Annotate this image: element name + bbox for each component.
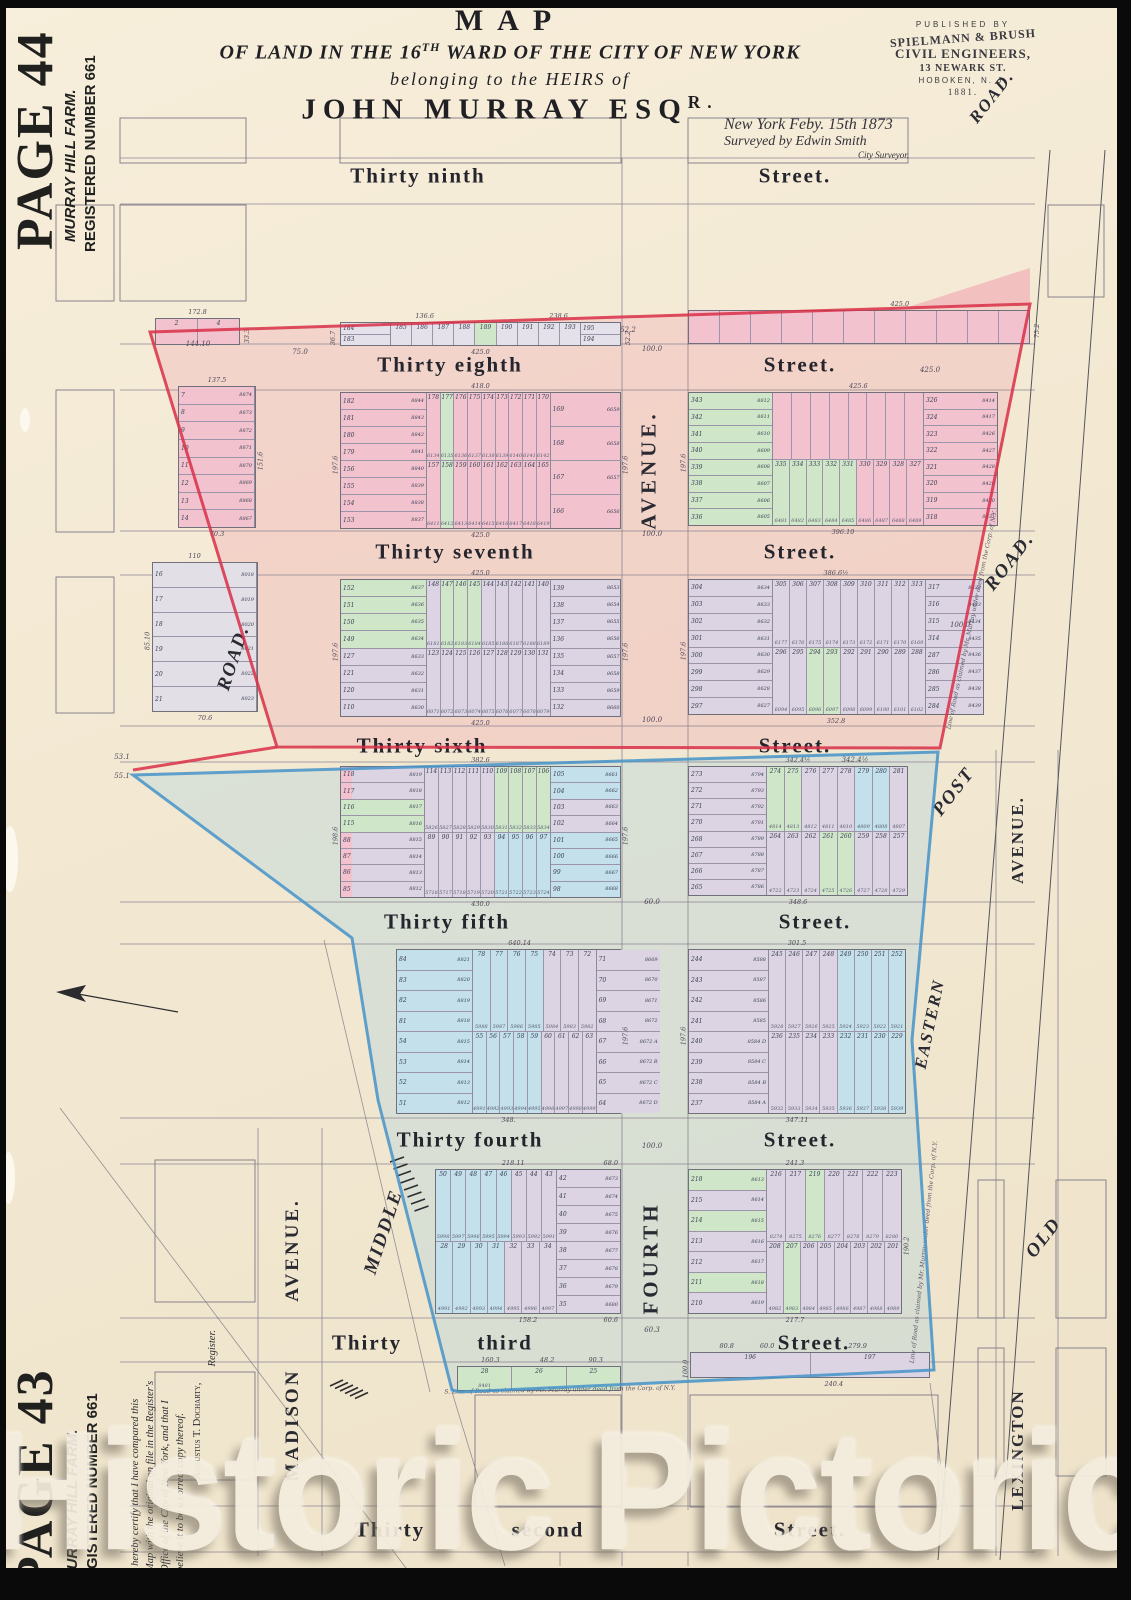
street-label-right: Street. [779,910,852,935]
lot-number: 298 [691,686,702,693]
deed-number: 5827 [439,825,452,831]
lot-number: 220 [828,1171,839,1178]
lot-number: 216 [770,1171,781,1178]
deed-number: 6094 [775,707,788,713]
scan-border-right [1117,0,1131,1600]
lot-number: 201 [887,1243,898,1250]
lot-number: 115 [343,820,354,827]
lot-cell: 191 [518,323,539,345]
lot-number: 57 [503,1033,511,1040]
lot-cell: 2054985 [818,1242,835,1313]
deed-number: 4814 [769,824,782,830]
lot-cell: 3296487 [874,460,891,526]
lot-cell: 658672 C [597,1073,660,1094]
deed-number: 8277 [828,1234,841,1240]
deed-number: 8428 [982,464,995,470]
lot-number: 2 [175,320,179,327]
lot-number: 172 [510,394,521,401]
lot-cell: 465994 [497,1170,512,1241]
lot-cell: 1338659 [551,683,622,700]
deed-number: 5995 [482,1234,495,1240]
lot-number: 38 [559,1247,567,1254]
lot-cell: 1048662 [551,783,620,799]
deed-number: 6172 [860,640,873,646]
lot-cell: 2525921 [889,950,905,1031]
lot-cell: 604996 [542,1032,556,1113]
measurement-label: 197.6 [679,454,687,473]
lot-cell: 294992 [453,1242,470,1313]
deed-number: 6183 [454,641,467,647]
lot-cell: 2428586 [689,991,768,1012]
lot-number: 211 [691,1279,702,1286]
lot-number: 81 [399,1018,407,1025]
lot-cell: 455993 [512,1170,527,1241]
deed-number: 8609 [757,448,770,454]
lot-cell: 187 [433,323,454,345]
lot-cell: 1616415 [482,461,496,528]
lot-number: 103 [553,804,564,811]
deed-number: 8617 [751,1259,764,1265]
measurement-label: 425.0 [471,569,490,577]
measurement-label: 386.6½ [824,569,849,577]
lot-number: 293 [826,649,837,656]
lot-cell [773,393,792,459]
lot-column: 1058661104866210386631028664101866510086… [550,767,620,897]
lot-cell: 2438587 [689,971,768,992]
lot-number: 257 [893,833,904,840]
lot-cell: 1378655 [551,614,622,631]
lot-number: 166 [553,508,564,515]
publisher-badge: PUBLISHED BY SPIELMANN & BRUSH CIVIL ENG… [868,20,1058,97]
deed-number: 6076 [496,709,509,715]
deed-number: 8633 [411,654,424,660]
title-belonging-line: belonging to the HEIRS of [170,69,850,90]
lot-number: 326 [926,397,937,404]
deed-number: 4813 [787,824,800,830]
lot-number: 281 [893,768,904,775]
publisher-address: 13 NEWARK ST. [868,63,1058,74]
lot-cell: 1646418 [523,461,537,528]
lot-cell: 2355933 [786,1032,803,1113]
deed-number: 4992 [455,1306,468,1312]
deed-number: 6134 [427,453,440,459]
lot-cell: 1038663 [551,800,620,816]
deed-number: 6659 [607,407,620,413]
deed-number: 5991 [543,1234,556,1240]
lot-number: 73 [566,951,574,958]
lot-number: 92 [470,834,478,841]
lot-number: 182 [343,398,354,405]
measurement-label: 240.4 [824,1380,843,1388]
lot-number: 194 [583,336,594,343]
lot-cell: 505998 [436,1170,451,1241]
deed-number: 8635 [411,619,424,625]
street-label: Thirty sixth [357,734,488,759]
lot-number: 97 [540,834,548,841]
lot-number: 33 [527,1243,535,1250]
lot-block: 3438612342861134186103408609339860833886… [688,392,998,526]
deed-number: 8610 [757,431,770,437]
lot-number: 271 [691,803,702,810]
deed-number: 8632 [411,671,424,677]
scan-border-left [0,0,6,1600]
lot-number: 93 [484,834,492,841]
deed-number: 8585 [753,1018,766,1024]
lot-number: 102 [553,820,564,827]
lot-cell: 2158614 [689,1191,766,1212]
lot-number: 178 [428,394,439,401]
lot-number: 179 [343,449,354,456]
deed-number: 5718 [453,890,466,896]
lot-cell: 435991 [542,1170,556,1241]
lot-number: 63 [585,1033,593,1040]
lot-cell: 2515922 [872,950,889,1031]
deed-number: 8815 [457,1039,470,1045]
lot-number: 56 [489,1033,497,1040]
lot-number: 67 [599,1038,607,1045]
lot-number: 263 [787,833,798,840]
deed-number: 5996 [467,1234,480,1240]
lot-number: 338 [691,480,702,487]
road-label: AVENUE. [282,1198,304,1302]
deed-number: 8873 [239,410,252,416]
lot-cell: 2208277 [825,1170,844,1241]
lot-number: 231 [857,1033,868,1040]
lot-number: 244 [691,956,702,963]
lot-cell [886,393,905,459]
lot-cell: 1828844 [341,393,426,410]
deed-number: 6176 [792,640,805,646]
deed-number: 6135 [441,453,454,459]
lot-column: 8488218388208288198188185488155388145288… [397,950,473,1113]
measurement-label: 197.6 [622,455,630,474]
lot-number: 50 [439,1171,447,1178]
deed-number: 5720 [481,890,494,896]
lot-number: 302 [691,618,702,625]
lot-number: 44 [530,1171,538,1178]
lot-block: 3048634303863330286323018631300863029986… [688,579,984,715]
lot-number: 8 [181,409,185,416]
lot-cell: 388677 [557,1242,620,1260]
deed-number: 6098 [843,707,856,713]
lot-cell: 3066176 [790,580,807,647]
lot-number: 105 [553,771,564,778]
lot-cell: 648672 D [597,1094,660,1114]
lot-number: 334 [792,461,803,468]
deed-number: 6096 [809,707,822,713]
deed-number: 6142 [537,453,550,459]
lot-cell: 344997 [540,1242,556,1313]
deed-number: 8793 [751,788,764,794]
deed-number: 4983 [785,1306,798,1312]
lot-cell: 2658786 [689,880,766,895]
measurement-label: 158.2 [519,1316,538,1324]
lot-column: 1188819117881811688171158816888815878814… [341,767,425,897]
lot-number: 54 [399,1038,407,1045]
lot-number: 341 [691,431,702,438]
lot-cell: 1736139 [496,393,510,460]
measurement-label: 60.3 [644,1326,660,1334]
lot-cell [999,311,1029,343]
lot-cell: 538814 [397,1053,472,1074]
lot-strip-row: 1486181147618214661831456184144618514361… [427,580,550,649]
measurement-label: 640.14 [508,939,531,947]
lot-number: 149 [343,636,354,643]
deed-number: 5831 [495,825,508,831]
deed-number: 5926 [805,1024,818,1030]
lot-number: 113 [440,768,451,775]
lot-number: 301 [691,635,702,642]
publisher-city: HOBOKEN, N. J. [868,76,1058,85]
measurement-label: 80.8 [719,1342,733,1350]
lot-number: 13 [181,498,189,505]
measurement-label: 75.0 [292,348,308,356]
lot-cell: 1498634 [341,631,426,648]
deed-number: 6138 [482,453,495,459]
lot-strip-row: 1786134177613517661361756137174613817361… [427,393,550,461]
lot-cell: 698671 [597,991,660,1012]
deed-number: 8839 [411,483,424,489]
lot-number: 147 [441,581,452,588]
lot-cell: 1596413 [454,461,468,528]
deed-number: 8792 [751,804,764,810]
lot-cell: 2784810 [838,767,856,831]
lot-strip-row: 185186187188189190191192193 [391,323,580,345]
measurement-label: 418.0 [471,382,490,390]
lot-number: 31 [492,1243,500,1250]
deed-number: 6182 [441,641,454,647]
deed-number: 5924 [839,1024,852,1030]
deed-number: 4729 [892,888,905,894]
measurement-label: 348. [501,1116,515,1124]
lot-number: 208 [769,1243,780,1250]
lot-number: 175 [469,394,480,401]
lot-cell: 2774811 [820,767,838,831]
deed-number: 5928 [771,1024,784,1030]
lot-number: 101 [553,837,564,844]
measurement-label: 60.6 [604,1316,618,1324]
deed-number: 4989 [887,1306,900,1312]
lot-cell: 2718792 [689,799,766,815]
deed-number: 8656 [607,636,620,642]
lot-cell: 1456184 [468,580,482,648]
deed-number: 8819 [457,998,470,1004]
deed-number: 6139 [496,453,509,459]
lot-column: 2188613215861421486152138616212861721186… [689,1170,767,1313]
lot-cell: 2936097 [824,648,841,715]
lot-number: 52 [399,1079,407,1086]
lot-cell: 2574729 [890,832,907,896]
lot-cell: 2118618 [689,1273,766,1294]
deed-number: 5983 [563,1024,576,1030]
deed-number: 6171 [877,640,890,646]
lot-cell: 1236071 [427,649,441,717]
deed-number: 6414 [468,521,481,527]
lot-number: 185 [395,324,406,331]
lot-number: 128 [496,650,507,657]
lot-column: 3268414324841732384263228427321842832084… [923,393,997,525]
lot-cell: 548815 [397,1032,472,1053]
lot-number: 167 [553,474,564,481]
lot-number: 284 [928,703,939,710]
lot-number: 127 [343,653,354,660]
lot-number: 181 [343,415,354,422]
lot-cell: 2916099 [858,648,875,715]
lot-cell: 1178818 [341,783,424,799]
lot-cell: 755985 [526,950,544,1031]
lot-number: 108 [510,768,521,775]
lot-number: 60 [544,1033,552,1040]
deed-number: 8658 [607,671,620,677]
deed-number: 5925 [822,1024,835,1030]
lot-cell: 3126170 [892,580,909,647]
deed-number: 6099 [860,707,873,713]
lot-number: 204 [837,1243,848,1250]
street-label: Thirty seventh [375,540,534,565]
publisher-year: 1881. [868,87,1058,97]
lot-number: 323 [926,431,937,438]
deed-number: 8274 [770,1234,783,1240]
measurement-label: 241.3 [786,1159,805,1167]
lot-cell: 895716 [425,833,439,898]
deed-number: 4722 [769,888,782,894]
measurement-label: 136.6 [415,312,434,320]
deed-number: 8611 [757,414,770,420]
lot-cell: 3248417 [924,410,997,427]
street-label-right: Street. [764,1128,837,1153]
deed-number: 4991 [473,1106,486,1112]
lot-cell: 3018631 [689,631,772,648]
deed-number: 8023 [241,696,254,702]
lot-number: 343 [691,397,702,404]
lot-cell: 3276489 [907,460,923,526]
lot-cell: 624998 [569,1032,583,1113]
lot-cell: 2906100 [875,648,892,715]
lot-cell: 2295939 [889,1032,905,1113]
lot-cell: 138868 [179,493,254,511]
deed-number: 6169 [911,640,924,646]
lot-number: 221 [848,1171,859,1178]
deed-number: 8634 [757,585,770,591]
deed-number: 8672 B [640,1059,658,1065]
deed-number: 4988 [870,1306,883,1312]
lot-cell: 3218428 [924,460,997,477]
lot-cell: 1746138 [482,393,496,460]
lot-cell: 3378606 [689,493,772,510]
lot-number: 35 [559,1301,567,1308]
deed-number: 4996 [524,1306,537,1312]
lot-cell: 1666656 [551,495,622,528]
lot-cell: 1676657 [551,461,622,495]
lot-number: 242 [691,997,702,1004]
deed-number: 6184 [468,641,481,647]
lot-cell: 2455928 [769,950,786,1031]
scan-border-top [0,0,1131,8]
lot-cell: 718669 [597,950,660,971]
lot-cell: 2764812 [802,767,820,831]
lot-number: 12 [181,480,189,487]
lot-number: 223 [886,1171,897,1178]
lot-cell: 1388654 [551,597,622,614]
lot-column: 195194 [580,323,620,345]
lot-cell: 1168817 [341,800,424,816]
lot-number: 300 [691,652,702,659]
north-arrow-head [56,985,86,1002]
deed-number: 6181 [427,641,440,647]
lot-number: 191 [522,324,533,331]
scanned-map-page: 1841831851861871881891901911921931951944… [0,0,1131,1600]
lot-number: 106 [538,768,549,775]
lot-number: 159 [455,462,466,469]
deed-number: 6078 [523,709,536,715]
lot-cell: 998667 [551,865,620,881]
lot-cell: 528813 [397,1073,472,1094]
lot-strip-row: 1576411158641215964131606414161641516264… [427,461,550,528]
page-number-top: PAGE 44 [6,30,65,250]
deed-number: 4807 [892,824,905,830]
lot-number: 267 [691,852,702,859]
deed-number: 8669 [645,957,658,963]
lot-cell: 848821 [397,950,472,971]
lot-number: 29 [458,1243,466,1250]
lot-cell: 1368656 [551,631,622,648]
deed-number: 4728 [875,888,888,894]
lot-cell: 192 [539,323,560,345]
deed-number: 8812 [457,1100,470,1106]
lot-strips: 2744814275481327648122774811278481027948… [767,767,907,895]
lot-number: 308 [826,581,837,588]
deed-number: 5937 [856,1106,869,1112]
lot-number: 110 [482,768,493,775]
lot-number: 37 [559,1265,567,1272]
lot-number: 315 [928,618,939,625]
deed-number: 5988 [475,1024,488,1030]
lot-cell: 1145826 [425,767,439,832]
lot-cell: 1286076 [496,649,510,717]
deed-number: 5986 [510,1024,523,1030]
lot-cell: 1508635 [341,614,426,631]
lot-cell: 775987 [491,950,509,1031]
deed-number: 6415 [482,521,495,527]
lot-cell: 3268414 [924,393,997,410]
deed-number: 6137 [468,453,481,459]
deed-number: 5722 [509,890,522,896]
measurement-label: 90.3 [588,1356,602,1364]
lot-strips: 2168274217827521982762208277221827822282… [767,1170,901,1313]
deed-number: 8663 [605,804,618,810]
lot-cell: 148867 [179,510,254,527]
lot-cell: 3418610 [689,426,772,443]
deed-number: 5997 [452,1234,465,1240]
deed-number: 8672 A [640,1039,658,1045]
lot-cell [689,311,720,343]
title-ward-line: OF LAND IN THE 16TH WARD OF THE CITY OF … [170,40,850,65]
deed-number: 5939 [891,1106,904,1112]
lot-number: 294 [809,649,820,656]
lot-number: 58 [517,1033,525,1040]
measurement-label: 70.6 [198,714,212,722]
deed-number: 4993 [472,1306,485,1312]
lot-cell: 1786134 [427,393,441,460]
lot-cell: 2218278 [844,1170,863,1241]
lot-number: 72 [583,951,591,958]
lot-block: 5059984959974859964759954659944559934459… [435,1169,621,1314]
lot-cell: 594995 [528,1032,542,1113]
lot-number: 64 [599,1100,607,1107]
lot-number: 265 [691,884,702,891]
lot-cell: 189 [475,323,496,345]
survey-surveyor: Surveyed by Edwin Smith [724,134,939,150]
